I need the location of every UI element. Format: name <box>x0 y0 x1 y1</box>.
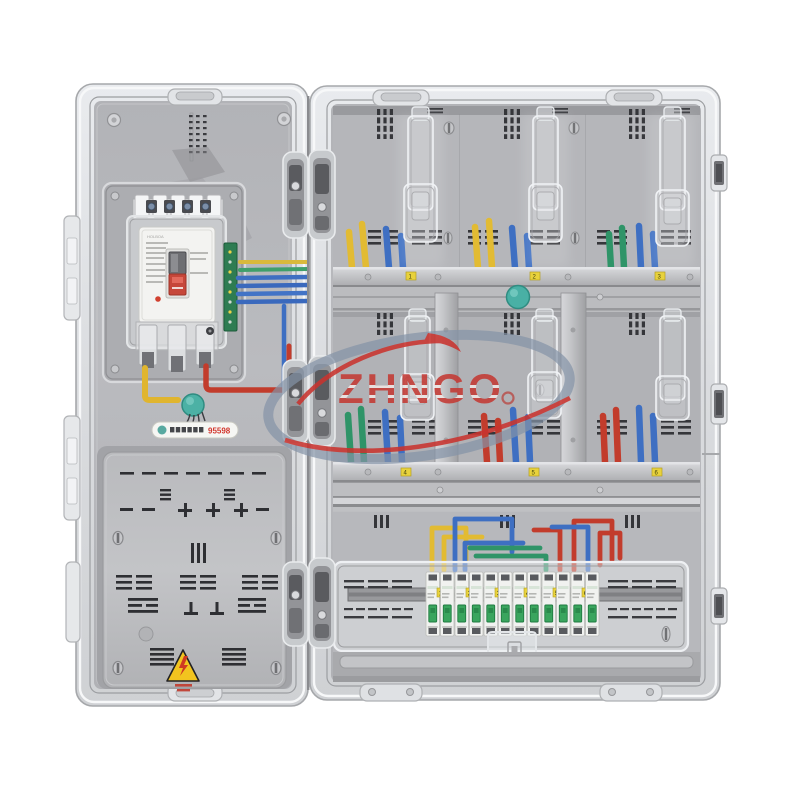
svg-text:95598: 95598 <box>208 427 231 436</box>
svg-text:ZHNGO: ZHNGO <box>338 365 504 412</box>
svg-text:HOLBOA: HOLBOA <box>147 234 164 239</box>
